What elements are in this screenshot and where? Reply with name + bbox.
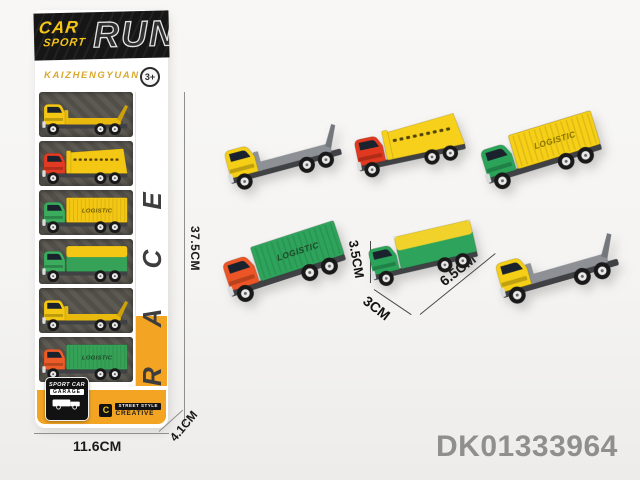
street-style-label: STREET STYLE xyxy=(115,403,161,410)
package-side-panel: RACE xyxy=(135,92,167,386)
loose-green-truck-yellow-container: LOGISTIC xyxy=(473,103,608,194)
package-cell-yellow-flatbed-truck xyxy=(39,92,133,137)
package-cell-yellow-flatbed-truck xyxy=(39,288,133,333)
brand-text: KAIZHENGYUAN xyxy=(44,70,140,81)
sport-text: SPORT xyxy=(42,36,86,49)
street-style-logo: C STREET STYLE CREATIVE xyxy=(99,403,161,417)
street-style-text-block: STREET STYLE CREATIVE xyxy=(115,403,161,417)
toy-package-box: CAR SPORT RUN KAIZHENGYUAN 3+ LOGISTIC xyxy=(35,10,168,428)
creative-label: CREATIVE xyxy=(115,411,161,418)
race-text: RACE xyxy=(137,100,167,386)
run-text: RUN xyxy=(92,12,169,56)
toy-truck-graphic xyxy=(218,109,348,194)
product-code: DK01333964 xyxy=(436,430,618,464)
scene: CAR SPORT RUN KAIZHENGYUAN 3+ LOGISTIC xyxy=(0,0,640,480)
box-width-dimension-line xyxy=(34,433,169,434)
toy-truck-graphic: LOGISTIC xyxy=(42,340,130,381)
toy-truck-graphic xyxy=(42,95,130,136)
loose-yellow-flatbed-truck xyxy=(218,109,348,194)
svg-text:LOGISTIC: LOGISTIC xyxy=(82,209,113,215)
toy-truck-graphic: LOGISTIC xyxy=(473,103,608,194)
toy-truck-graphic: LOGISTIC xyxy=(42,193,130,234)
garage-truck-icon xyxy=(50,397,84,410)
truck-width-dimension-label: 3CM xyxy=(360,293,393,324)
package-footer-band: SPORT CAR GARAGE C STREET STYLE CREATIVE xyxy=(37,390,166,424)
toy-truck-graphic: LOGISTIC xyxy=(215,213,353,307)
car-text: CAR xyxy=(38,18,80,39)
loose-orange-truck-green-container: LOGISTIC xyxy=(215,213,353,307)
toy-truck-graphic xyxy=(42,291,130,332)
package-cell-orange-truck-green-container: LOGISTIC xyxy=(39,337,133,382)
package-truck-cells: LOGISTIC LOGISTIC xyxy=(39,92,133,386)
garage-badge-line2: GARAGE xyxy=(50,389,84,395)
toy-truck-graphic xyxy=(42,242,130,283)
box-height-dimension-line xyxy=(184,92,185,424)
loose-yellow-flatbed-truck xyxy=(488,218,625,309)
loose-red-dump-truck xyxy=(349,106,471,181)
box-depth-dimension-label: 4.1CM xyxy=(167,408,200,444)
garage-badge-line1: SPORT CAR xyxy=(49,382,85,388)
sport-car-garage-badge: SPORT CAR GARAGE xyxy=(45,377,89,421)
package-cell-red-dump-truck xyxy=(39,141,133,186)
package-brand-row: KAIZHENGYUAN 3+ xyxy=(35,61,168,91)
package-cell-green-truck-striped-container xyxy=(39,239,133,284)
box-height-dimension-label: 37.5CM xyxy=(188,226,202,271)
toy-truck-graphic xyxy=(42,144,130,185)
toy-truck-graphic xyxy=(349,106,471,181)
c-logo: C xyxy=(99,404,112,417)
package-cell-green-truck-yellow-container: LOGISTIC xyxy=(39,190,133,235)
package-header-band: CAR SPORT RUN xyxy=(33,10,169,60)
age-badge: 3+ xyxy=(140,67,160,87)
svg-text:LOGISTIC: LOGISTIC xyxy=(82,356,113,362)
toy-truck-graphic xyxy=(488,218,625,309)
box-width-dimension-label: 11.6CM xyxy=(73,438,121,454)
